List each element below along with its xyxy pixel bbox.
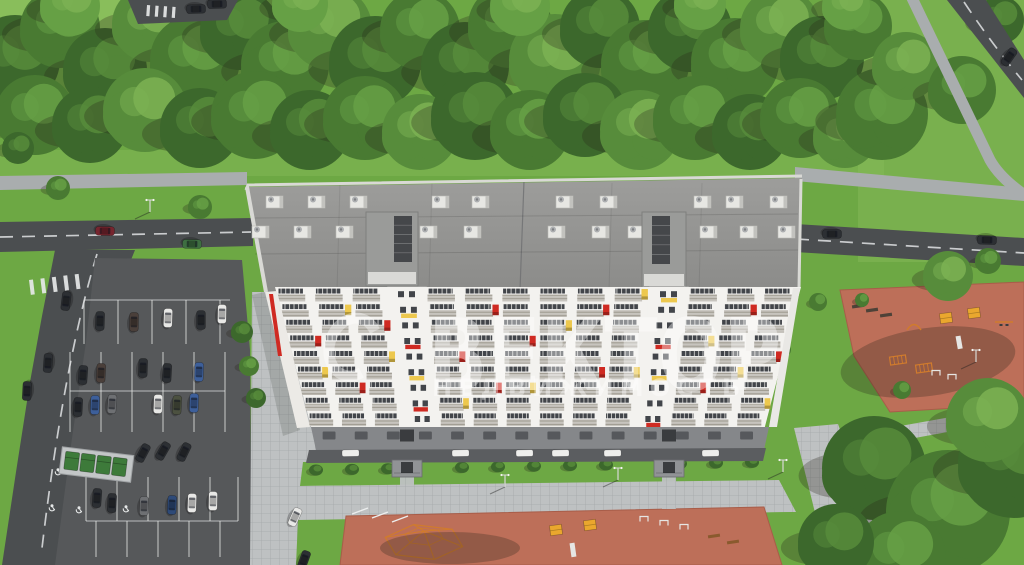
ground-window bbox=[451, 432, 464, 440]
balcony-rail bbox=[367, 372, 392, 373]
balcony bbox=[369, 388, 394, 395]
balcony-rail bbox=[540, 294, 567, 295]
balcony-rail bbox=[615, 294, 642, 295]
balcony bbox=[315, 294, 342, 301]
balcony bbox=[506, 403, 531, 410]
tree-shadow bbox=[380, 532, 520, 564]
entrance-door bbox=[400, 430, 414, 442]
window-band bbox=[540, 413, 561, 418]
roof-vent bbox=[592, 226, 609, 238]
window-band bbox=[428, 289, 452, 294]
stair-bay bbox=[646, 318, 684, 334]
window-band bbox=[725, 304, 749, 309]
balcony bbox=[721, 325, 748, 332]
balcony bbox=[611, 341, 637, 348]
window-band bbox=[540, 304, 564, 309]
stair-window bbox=[658, 307, 664, 313]
balcony-rail bbox=[741, 403, 766, 404]
stair-window bbox=[404, 338, 410, 344]
window-band bbox=[343, 413, 364, 418]
window-band bbox=[574, 398, 596, 403]
stair-window bbox=[669, 307, 675, 313]
balcony-rail bbox=[609, 372, 634, 373]
window-band bbox=[441, 413, 462, 418]
entrance-porch bbox=[392, 460, 422, 477]
accent-panel bbox=[652, 376, 667, 381]
balcony bbox=[505, 372, 530, 379]
balcony bbox=[741, 403, 766, 410]
balcony-rail bbox=[727, 294, 754, 295]
balcony bbox=[325, 341, 351, 348]
balcony-rail bbox=[286, 325, 313, 326]
window-band bbox=[279, 289, 303, 294]
window-band bbox=[336, 382, 358, 387]
balcony bbox=[372, 403, 397, 410]
window-band bbox=[751, 351, 774, 356]
balcony-rail bbox=[466, 309, 493, 310]
balcony-rail bbox=[361, 340, 387, 341]
balcony bbox=[309, 419, 333, 426]
balcony bbox=[431, 325, 458, 332]
balcony bbox=[573, 419, 597, 426]
window-band bbox=[741, 398, 763, 403]
roof-penthouse bbox=[366, 212, 418, 286]
balcony bbox=[437, 388, 462, 395]
stair-window bbox=[413, 322, 419, 328]
balcony-rail bbox=[329, 356, 355, 357]
balcony-rail bbox=[575, 356, 601, 357]
balcony-rail bbox=[506, 387, 531, 388]
balcony bbox=[747, 372, 772, 379]
balcony bbox=[761, 310, 788, 317]
window-band bbox=[686, 320, 710, 325]
balcony bbox=[434, 357, 460, 364]
balcony bbox=[507, 419, 531, 426]
ground-window bbox=[740, 432, 753, 440]
window-band bbox=[306, 398, 328, 403]
ground-window bbox=[355, 432, 368, 440]
balcony bbox=[680, 357, 706, 364]
window-band bbox=[470, 351, 493, 356]
window-band bbox=[302, 382, 324, 387]
balcony-rail bbox=[611, 340, 637, 341]
stair-window bbox=[656, 322, 662, 328]
ground-floor bbox=[311, 427, 769, 450]
play-tower bbox=[583, 519, 596, 531]
balcony-rail bbox=[364, 356, 390, 357]
stair-bay bbox=[401, 380, 437, 396]
window-band bbox=[716, 351, 739, 356]
dumpster-bin bbox=[64, 451, 80, 471]
balcony-rail bbox=[436, 372, 461, 373]
balcony bbox=[678, 372, 703, 379]
balcony-rail bbox=[503, 325, 530, 326]
dumpster-bin bbox=[111, 457, 127, 477]
accent-panel bbox=[414, 407, 428, 412]
balcony-rail bbox=[764, 294, 791, 295]
parked-car bbox=[205, 0, 226, 9]
balcony-rail bbox=[540, 387, 565, 388]
roof-vent bbox=[266, 196, 283, 208]
window-band bbox=[339, 398, 361, 403]
balcony bbox=[439, 403, 464, 410]
window-band bbox=[507, 398, 529, 403]
balcony-rail bbox=[358, 325, 385, 326]
balcony-rail bbox=[614, 309, 641, 310]
accent-panel bbox=[646, 423, 660, 428]
balcony bbox=[293, 357, 319, 364]
balcony bbox=[685, 325, 712, 332]
stair-window bbox=[661, 369, 667, 375]
balcony-rail bbox=[434, 356, 460, 357]
window-band bbox=[294, 351, 317, 356]
window-band bbox=[466, 289, 490, 294]
balcony-rail bbox=[687, 309, 714, 310]
stair-window bbox=[667, 322, 673, 328]
balcony-rail bbox=[704, 418, 728, 419]
stair-window bbox=[409, 291, 415, 297]
dumpster-bin bbox=[95, 455, 111, 475]
roof-vent bbox=[726, 196, 743, 208]
accent-panel bbox=[661, 298, 677, 303]
scene-canvas bbox=[0, 0, 1024, 565]
balcony bbox=[466, 310, 493, 317]
window-band bbox=[688, 304, 712, 309]
window-band bbox=[507, 413, 528, 418]
parked-van bbox=[452, 450, 469, 457]
stair-bay bbox=[639, 380, 675, 396]
balcony-rail bbox=[737, 418, 761, 419]
balcony-rail bbox=[540, 372, 565, 373]
stair-window bbox=[651, 369, 657, 375]
parked-van bbox=[604, 450, 621, 457]
swing-seat bbox=[1000, 324, 1003, 326]
balcony bbox=[674, 403, 699, 410]
balcony-rail bbox=[683, 340, 709, 341]
window-band bbox=[540, 398, 562, 403]
parked-van bbox=[552, 450, 569, 457]
stair-window bbox=[415, 416, 420, 422]
window-band bbox=[430, 304, 454, 309]
balcony bbox=[615, 294, 642, 301]
stair-window bbox=[665, 338, 671, 344]
balcony bbox=[319, 310, 346, 317]
balcony bbox=[503, 325, 530, 332]
window-band bbox=[438, 382, 460, 387]
ground-window bbox=[708, 432, 721, 440]
roof-vent bbox=[472, 196, 489, 208]
window-band bbox=[359, 320, 383, 325]
balcony bbox=[573, 403, 598, 410]
window-band bbox=[690, 289, 714, 294]
balcony-rail bbox=[573, 403, 598, 404]
balcony-rail bbox=[322, 325, 349, 326]
window-band bbox=[738, 413, 759, 418]
window-band bbox=[679, 367, 702, 372]
window-band bbox=[323, 320, 347, 325]
window-band bbox=[765, 289, 789, 294]
window-band bbox=[540, 351, 563, 356]
balcony bbox=[429, 310, 456, 317]
stair-window bbox=[647, 400, 652, 406]
stair-window bbox=[419, 369, 425, 375]
window-band bbox=[329, 351, 352, 356]
balcony-rail bbox=[431, 325, 458, 326]
window-band bbox=[611, 351, 634, 356]
balcony-rail bbox=[540, 325, 567, 326]
entrance-door bbox=[663, 462, 675, 473]
balcony bbox=[764, 294, 791, 301]
window-band bbox=[370, 382, 392, 387]
window-band bbox=[432, 320, 456, 325]
balcony bbox=[577, 310, 604, 317]
window-band bbox=[748, 367, 771, 372]
balcony-rail bbox=[353, 294, 380, 295]
stair-window bbox=[411, 385, 416, 391]
window-band bbox=[607, 398, 629, 403]
balcony bbox=[540, 310, 567, 317]
stair-window bbox=[657, 400, 662, 406]
balcony bbox=[540, 388, 565, 395]
balcony-rail bbox=[315, 294, 342, 295]
window-band bbox=[612, 335, 635, 340]
window-band bbox=[610, 367, 633, 372]
balcony bbox=[503, 310, 530, 317]
window-band bbox=[719, 335, 742, 340]
balcony-rail bbox=[574, 372, 599, 373]
balcony-rail bbox=[309, 418, 333, 419]
balcony bbox=[576, 325, 603, 332]
balcony-rail bbox=[342, 418, 366, 419]
window-band bbox=[367, 367, 390, 372]
roof-vent bbox=[778, 226, 795, 238]
balcony-rail bbox=[428, 294, 455, 295]
balcony-rail bbox=[576, 325, 603, 326]
roof-vent bbox=[556, 196, 573, 208]
balcony-rail bbox=[676, 387, 701, 388]
balcony-rail bbox=[372, 403, 397, 404]
balcony bbox=[575, 341, 601, 348]
balcony-rail bbox=[674, 403, 699, 404]
window-band bbox=[758, 320, 782, 325]
roof bbox=[247, 178, 802, 293]
window-band bbox=[576, 335, 599, 340]
balcony bbox=[540, 294, 567, 301]
window-band bbox=[373, 398, 395, 403]
balcony bbox=[469, 357, 495, 364]
stair-bay bbox=[405, 412, 440, 428]
window-band bbox=[506, 382, 528, 387]
parked-van bbox=[702, 450, 719, 457]
balcony bbox=[432, 341, 458, 348]
window-band bbox=[711, 382, 733, 387]
window-band bbox=[298, 367, 321, 372]
balcony-rail bbox=[507, 418, 531, 419]
balcony-rail bbox=[610, 356, 636, 357]
balcony bbox=[716, 357, 742, 364]
balcony-rail bbox=[680, 356, 706, 357]
window-band bbox=[376, 413, 397, 418]
balcony-rail bbox=[758, 325, 785, 326]
balcony-rail bbox=[574, 387, 599, 388]
balcony-rail bbox=[761, 309, 788, 310]
ground-window bbox=[580, 432, 593, 440]
balcony-rail bbox=[282, 309, 309, 310]
balcony-rail bbox=[293, 356, 319, 357]
balcony-rail bbox=[325, 340, 351, 341]
balcony bbox=[737, 419, 761, 426]
roof-vent bbox=[308, 196, 325, 208]
aerial-residential-render: ВЕКТОР НЕДВИЖИМОСТЬ bbox=[0, 0, 1024, 565]
ground-window bbox=[483, 432, 496, 440]
window-band bbox=[472, 382, 494, 387]
window-band bbox=[608, 382, 630, 387]
stair-window bbox=[417, 354, 423, 360]
window-band bbox=[474, 413, 495, 418]
balcony-rail bbox=[718, 340, 744, 341]
balcony bbox=[504, 341, 530, 348]
balcony-rail bbox=[505, 356, 531, 357]
balcony-rail bbox=[355, 309, 382, 310]
balcony bbox=[704, 419, 728, 426]
balcony-rail bbox=[473, 403, 498, 404]
ground-window bbox=[676, 432, 689, 440]
window-band bbox=[290, 335, 313, 340]
stair-window bbox=[398, 291, 404, 297]
balcony bbox=[441, 419, 465, 426]
window-band bbox=[282, 304, 306, 309]
balcony-rail bbox=[608, 387, 633, 388]
balcony bbox=[724, 310, 751, 317]
window-band bbox=[505, 335, 528, 340]
balcony-rail bbox=[290, 340, 316, 341]
balcony bbox=[540, 372, 565, 379]
balcony bbox=[305, 403, 330, 410]
window-band bbox=[503, 289, 527, 294]
window-band bbox=[433, 335, 456, 340]
forest bbox=[0, 0, 1024, 170]
balcony bbox=[577, 294, 604, 301]
window-band bbox=[310, 413, 331, 418]
stair-window bbox=[415, 338, 421, 344]
window-band bbox=[440, 398, 462, 403]
window-band bbox=[505, 351, 528, 356]
window-band bbox=[606, 413, 627, 418]
balcony bbox=[687, 310, 714, 317]
stair-window bbox=[653, 354, 659, 360]
balcony-rail bbox=[747, 372, 772, 373]
balcony-rail bbox=[716, 356, 742, 357]
balcony-rail bbox=[467, 325, 494, 326]
balcony bbox=[744, 388, 769, 395]
balcony-rail bbox=[690, 294, 717, 295]
balcony bbox=[505, 357, 531, 364]
roof-vent bbox=[336, 226, 353, 238]
balcony bbox=[355, 310, 382, 317]
playground-bottom bbox=[340, 507, 782, 565]
stair-bay bbox=[396, 349, 433, 365]
balcony bbox=[329, 357, 355, 364]
balcony-rail bbox=[472, 387, 497, 388]
entrance-porch bbox=[654, 460, 684, 477]
roof-vent bbox=[464, 226, 481, 238]
ground-window bbox=[612, 432, 625, 440]
balcony bbox=[436, 372, 461, 379]
stair-bay bbox=[638, 396, 673, 412]
window-band bbox=[722, 320, 746, 325]
play-tower bbox=[549, 524, 562, 536]
window-band bbox=[614, 304, 638, 309]
window-band bbox=[333, 367, 356, 372]
entrance-door bbox=[662, 430, 676, 442]
ground-window bbox=[387, 432, 400, 440]
balcony bbox=[353, 294, 380, 301]
balcony bbox=[364, 357, 390, 364]
balcony bbox=[574, 388, 599, 395]
window-band bbox=[755, 335, 778, 340]
window-band bbox=[575, 367, 598, 372]
balcony-rail bbox=[429, 309, 456, 310]
window-band bbox=[577, 320, 601, 325]
window-band bbox=[504, 320, 528, 325]
balcony bbox=[605, 419, 629, 426]
window-band bbox=[506, 367, 529, 372]
balcony-rail bbox=[469, 356, 495, 357]
balcony-rail bbox=[339, 403, 364, 404]
balcony bbox=[361, 341, 387, 348]
window-band bbox=[705, 413, 726, 418]
stair-window bbox=[424, 416, 429, 422]
window-band bbox=[576, 351, 599, 356]
window-band bbox=[540, 367, 563, 372]
balcony-rail bbox=[474, 418, 498, 419]
window-band bbox=[762, 304, 786, 309]
service-lane bbox=[306, 448, 766, 463]
balcony bbox=[290, 341, 316, 348]
balcony bbox=[540, 403, 565, 410]
balcony-rail bbox=[751, 356, 777, 357]
window-band bbox=[316, 289, 340, 294]
balcony bbox=[506, 388, 531, 395]
window-band bbox=[362, 335, 385, 340]
window-band bbox=[573, 413, 594, 418]
ground-window bbox=[547, 432, 560, 440]
balcony-rail bbox=[573, 418, 597, 419]
window-band bbox=[353, 289, 377, 294]
roof-vent bbox=[294, 226, 311, 238]
window-band bbox=[326, 335, 349, 340]
balcony bbox=[540, 357, 566, 364]
roof-penthouse bbox=[642, 212, 686, 288]
balcony bbox=[676, 388, 701, 395]
stair-window bbox=[411, 307, 417, 313]
balcony bbox=[470, 372, 495, 379]
ground-window bbox=[419, 432, 432, 440]
accent-panel bbox=[401, 314, 417, 319]
balcony-rail bbox=[577, 294, 604, 295]
ground-window bbox=[644, 432, 657, 440]
balcony-rail bbox=[540, 340, 566, 341]
balcony bbox=[358, 325, 385, 332]
balcony-rail bbox=[575, 340, 601, 341]
roof-vent bbox=[770, 196, 787, 208]
balcony-rail bbox=[506, 403, 531, 404]
window-band bbox=[540, 382, 562, 387]
balcony-rail bbox=[685, 325, 712, 326]
balcony-rail bbox=[297, 372, 322, 373]
balcony bbox=[339, 403, 364, 410]
balcony-rail bbox=[707, 403, 732, 404]
